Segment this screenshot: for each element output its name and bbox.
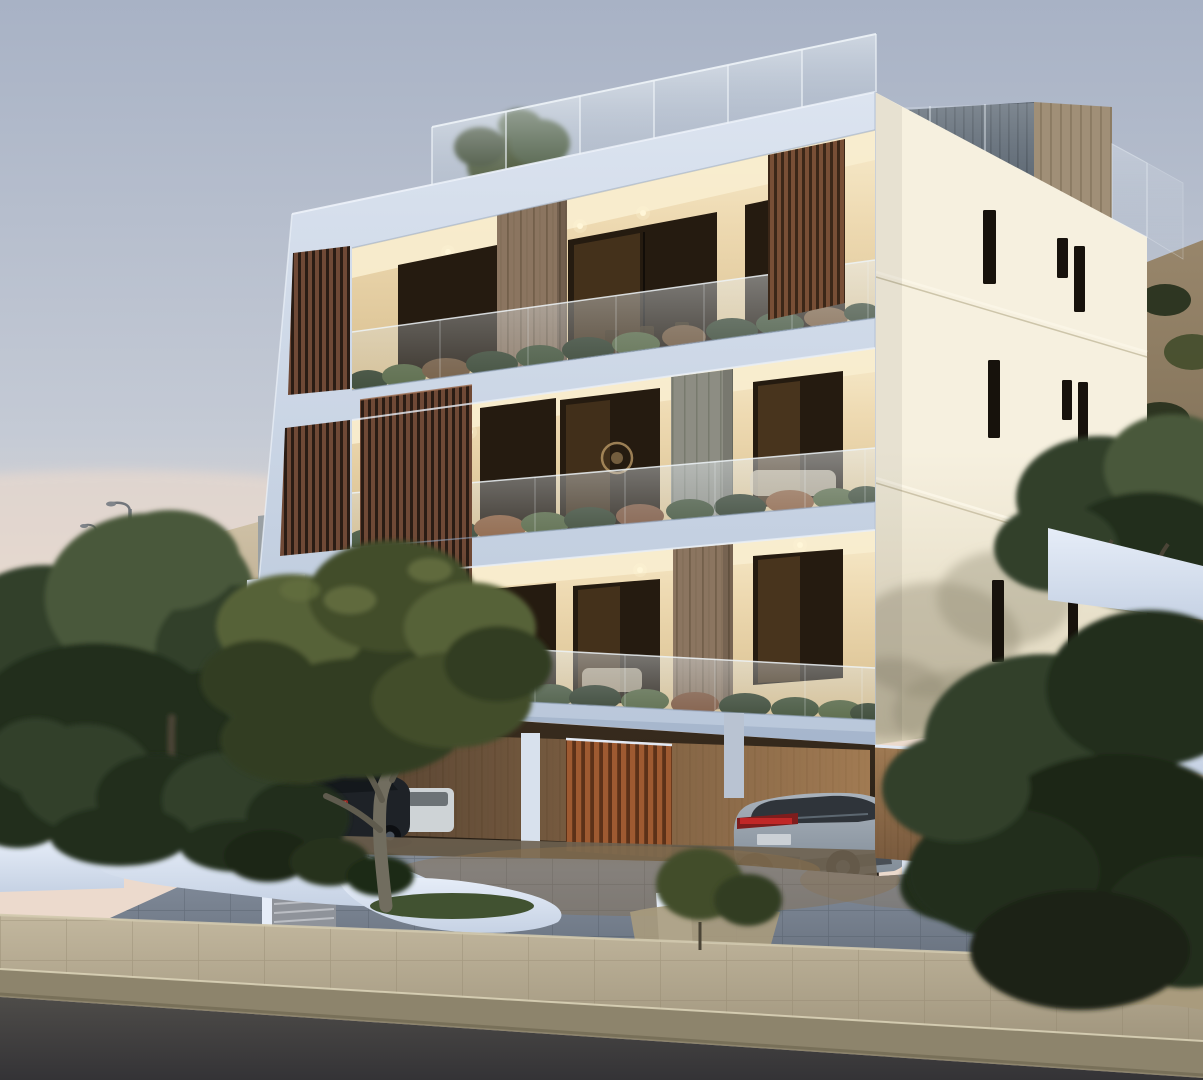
lamp-head — [80, 524, 88, 528]
lamp-head — [106, 502, 116, 507]
wood-partition — [566, 739, 672, 858]
scene — [0, 0, 1203, 1080]
louver-strip-floor2 — [280, 420, 350, 556]
license-plate — [757, 834, 791, 845]
slit-window — [983, 210, 996, 284]
slit-window — [1074, 246, 1085, 312]
slit-window — [988, 360, 1000, 438]
corner-shade — [875, 92, 902, 745]
slit-window — [1062, 380, 1072, 420]
column-behind-suv — [724, 713, 744, 798]
louver-strip-floor1 — [288, 246, 350, 395]
slit-window — [1057, 238, 1068, 278]
slit-window — [992, 580, 1004, 662]
louver-screen-floor1-right — [768, 139, 845, 320]
grass-bed — [370, 893, 534, 919]
render-canvas — [0, 0, 1203, 1080]
